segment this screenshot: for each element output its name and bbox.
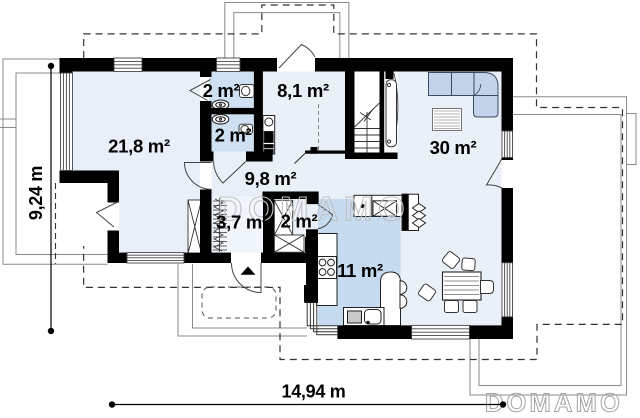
svg-text:21,8 m²: 21,8 m² <box>108 136 170 157</box>
svg-text:3,7 m²: 3,7 m² <box>216 212 268 233</box>
svg-text:2 m²: 2 m² <box>203 80 240 101</box>
svg-text:30 m²: 30 m² <box>430 137 477 158</box>
svg-text:11 m²: 11 m² <box>337 260 383 281</box>
svg-text:2 m²: 2 m² <box>215 125 252 146</box>
svg-text:8,1 m²: 8,1 m² <box>277 80 329 101</box>
svg-text:2 m²: 2 m² <box>281 211 318 232</box>
svg-text:14,94 m: 14,94 m <box>282 382 346 402</box>
svg-text:9,8 m²: 9,8 m² <box>245 168 297 189</box>
svg-text:9,24 m: 9,24 m <box>26 166 46 220</box>
